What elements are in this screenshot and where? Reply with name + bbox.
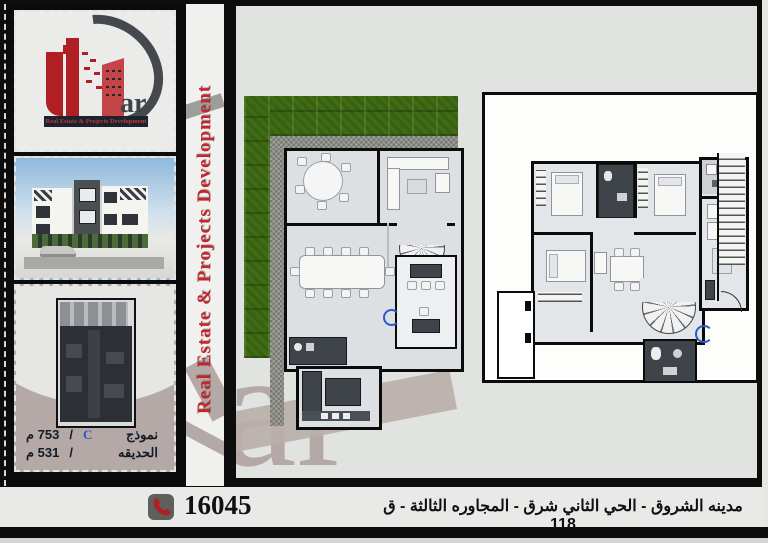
brochure-page: ar Real Estate & Projects Development: [0, 0, 768, 543]
paving-left: [270, 150, 284, 426]
dining-table: [299, 255, 385, 289]
logo-tagline: Real Estate & Projects Development: [44, 116, 148, 127]
bathroom: [289, 337, 347, 365]
bathroom-annex: [643, 339, 697, 383]
phone-icon: [148, 494, 174, 520]
bottom-margin: [0, 538, 768, 543]
bed: [654, 174, 686, 216]
bathroom: [598, 164, 634, 218]
office-room: [395, 255, 457, 349]
bed: [546, 250, 586, 282]
table: [610, 256, 644, 282]
garden-label: الحديقه: [118, 445, 158, 461]
sofa: [387, 168, 400, 210]
desk: [594, 252, 607, 274]
tv-unit: [705, 280, 715, 300]
dresser: [538, 292, 582, 302]
location-text: مدينه الشروق - الحي الثاني شرق - المجاور…: [370, 496, 756, 534]
garden-area-row: 135 م / الحديقه: [26, 444, 164, 461]
model-area-row: 357 م / C نموذج: [26, 426, 164, 443]
model-code: C: [83, 427, 92, 443]
plans-canvas: ar: [236, 6, 757, 478]
vertical-banner-text: Real Estate & Projects Development: [186, 34, 224, 464]
door-arc: [383, 309, 400, 326]
coffee-table: [407, 179, 427, 194]
garden-left: [244, 96, 270, 358]
round-table: [303, 161, 343, 201]
model-area-value: 357 م: [26, 427, 59, 443]
page-edge: [762, 0, 768, 543]
upper-floor-sheet: [482, 92, 757, 383]
car: [40, 246, 76, 257]
vertical-banner: Real Estate & Projects Development: [186, 4, 224, 486]
building-photo: [14, 156, 176, 280]
left-filmstrip: ar Real Estate & Projects Development: [4, 4, 190, 486]
wardrobe: [536, 170, 546, 206]
plan-thumbnail: [56, 298, 136, 428]
garden-area-value: 135 م: [26, 445, 59, 461]
door-arc: [695, 325, 713, 343]
bed: [551, 172, 583, 216]
upper-floor-body: [531, 161, 705, 345]
external-stairs: [717, 153, 745, 265]
wardrobe: [638, 168, 648, 208]
model-summary-panel: 357 م / C نموذج 135 م / الحديقه: [14, 284, 176, 472]
entry-shaft: [497, 291, 535, 379]
phone-number: 16045: [184, 490, 252, 521]
garden-top: [244, 96, 458, 136]
footer-bar: 16045 مدينه الشروق - الحي الثاني شرق - ا…: [0, 487, 763, 527]
model-label: نموذج: [126, 427, 158, 443]
kitchen: [296, 366, 382, 430]
ground-floor-body: [284, 148, 464, 372]
logo-panel: ar Real Estate & Projects Development: [14, 10, 176, 152]
armchair: [435, 173, 450, 193]
